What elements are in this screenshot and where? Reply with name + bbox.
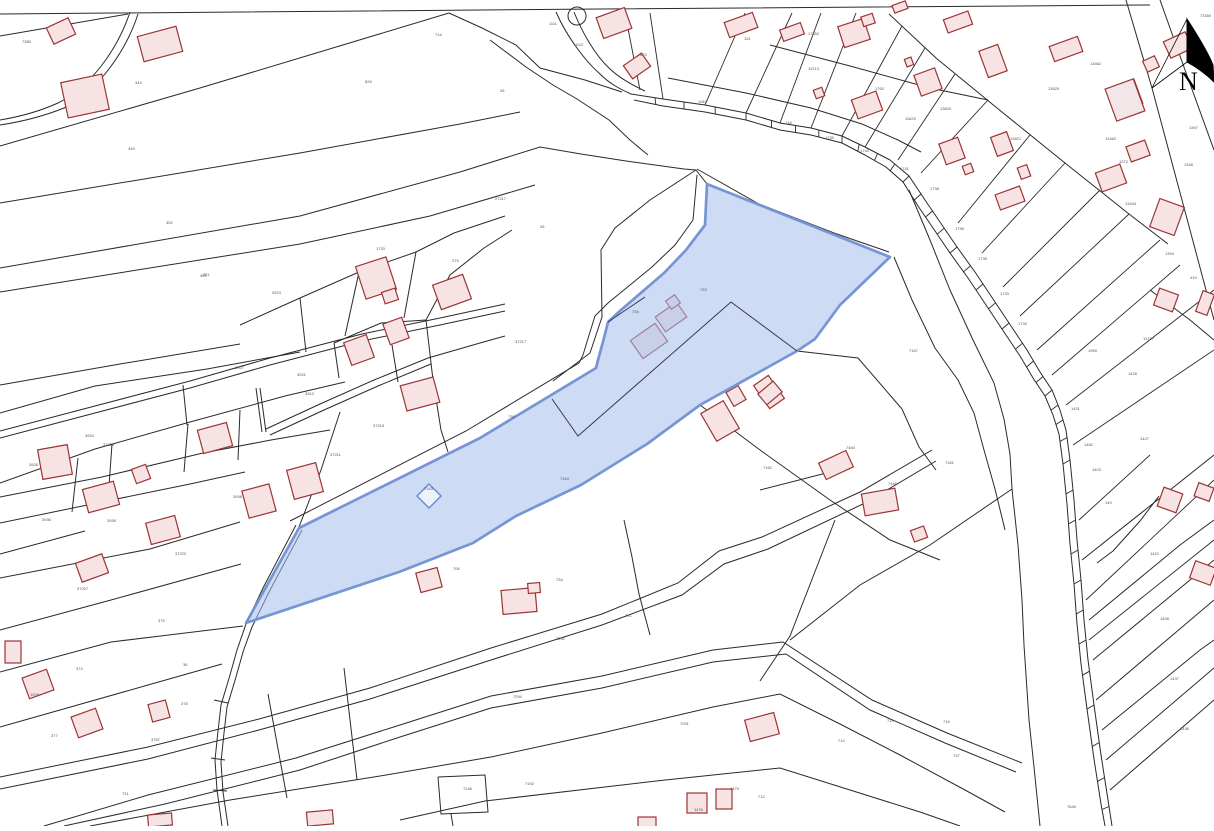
svg-text:1740: 1740 — [860, 148, 870, 153]
svg-text:731: 731 — [122, 791, 129, 796]
svg-text:1348: 1348 — [1184, 162, 1194, 167]
svg-text:1403: 1403 — [1092, 467, 1102, 472]
svg-text:7446: 7446 — [888, 481, 898, 486]
svg-text:1733: 1733 — [1000, 291, 1010, 296]
svg-text:1372: 1372 — [1119, 159, 1129, 164]
svg-text:7161: 7161 — [945, 460, 955, 465]
svg-text:13621: 13621 — [1010, 136, 1022, 141]
svg-text:1739: 1739 — [825, 135, 835, 140]
svg-text:7380: 7380 — [22, 39, 32, 44]
svg-text:1182: 1182 — [698, 99, 707, 104]
svg-text:738: 738 — [508, 414, 515, 419]
svg-text:1397: 1397 — [1189, 125, 1199, 130]
svg-text:1479: 1479 — [730, 786, 740, 791]
svg-text:7163: 7163 — [424, 486, 434, 491]
svg-text:149: 149 — [1105, 500, 1112, 505]
svg-text:1436: 1436 — [1180, 726, 1190, 731]
svg-text:1112: 1112 — [575, 42, 584, 47]
svg-text:7192: 7192 — [525, 781, 535, 786]
svg-text:1078: 1078 — [30, 692, 40, 697]
svg-text:361: 361 — [203, 272, 210, 277]
svg-text:1394: 1394 — [1165, 251, 1175, 256]
svg-text:3923: 3923 — [272, 290, 282, 295]
svg-text:1422: 1422 — [1150, 551, 1160, 556]
svg-text:13462: 13462 — [1090, 61, 1102, 66]
svg-text:114: 114 — [744, 36, 751, 41]
svg-text:1741: 1741 — [900, 166, 910, 171]
svg-text:374: 374 — [76, 666, 83, 671]
svg-text:7292: 7292 — [556, 636, 566, 641]
svg-text:3913: 3913 — [305, 391, 315, 396]
svg-text:344: 344 — [135, 80, 142, 85]
svg-text:1733: 1733 — [376, 246, 386, 251]
svg-text:826: 826 — [365, 79, 372, 84]
svg-text:37220: 37220 — [175, 551, 187, 556]
svg-text:1734: 1734 — [1018, 321, 1028, 326]
svg-text:419: 419 — [1190, 275, 1197, 280]
svg-text:134: 134 — [785, 120, 792, 125]
svg-text:26: 26 — [540, 224, 545, 229]
svg-text:3939: 3939 — [107, 518, 117, 523]
svg-text:721: 721 — [625, 613, 632, 618]
svg-text:1462: 1462 — [1084, 442, 1094, 447]
svg-text:1437: 1437 — [1170, 676, 1180, 681]
svg-text:13797: 13797 — [1143, 336, 1155, 341]
svg-text:7146: 7146 — [463, 786, 473, 791]
svg-text:716: 716 — [943, 719, 950, 724]
svg-text:349: 349 — [128, 146, 135, 151]
svg-text:1431: 1431 — [1071, 406, 1081, 411]
svg-text:1763: 1763 — [875, 86, 885, 91]
svg-text:73450: 73450 — [1200, 13, 1212, 18]
svg-text:36: 36 — [183, 662, 188, 667]
svg-text:13625: 13625 — [1048, 86, 1060, 91]
svg-text:1427: 1427 — [1140, 436, 1150, 441]
svg-text:17452: 17452 — [808, 31, 820, 36]
svg-text:13444: 13444 — [1125, 201, 1137, 206]
svg-text:7460: 7460 — [846, 445, 856, 450]
svg-text:706: 706 — [453, 566, 460, 571]
svg-text:1736: 1736 — [955, 226, 965, 231]
svg-text:3938: 3938 — [233, 494, 243, 499]
svg-text:3936: 3936 — [42, 517, 52, 522]
svg-text:7162: 7162 — [763, 465, 773, 470]
svg-text:1735: 1735 — [978, 256, 988, 261]
svg-text:7164: 7164 — [560, 476, 570, 481]
svg-text:1738: 1738 — [930, 186, 940, 191]
svg-text:377: 377 — [51, 733, 58, 738]
svg-text:375: 375 — [158, 618, 165, 623]
svg-text:3924: 3924 — [85, 433, 95, 438]
svg-text:37211: 37211 — [330, 452, 342, 457]
svg-text:3921: 3921 — [297, 372, 307, 377]
svg-text:719: 719 — [887, 718, 894, 723]
svg-text:N: N — [1179, 67, 1198, 96]
svg-text:26: 26 — [500, 88, 505, 93]
svg-text:37207: 37207 — [77, 586, 89, 591]
svg-text:712: 712 — [758, 794, 765, 799]
svg-text:352: 352 — [166, 220, 173, 225]
svg-text:7294: 7294 — [513, 694, 523, 699]
svg-text:37215: 37215 — [373, 423, 385, 428]
svg-text:1428: 1428 — [1128, 371, 1138, 376]
svg-text:3927: 3927 — [235, 365, 245, 370]
svg-text:714: 714 — [435, 32, 442, 37]
svg-text:13620: 13620 — [940, 106, 952, 111]
svg-text:714: 714 — [838, 738, 845, 743]
svg-text:13462: 13462 — [1105, 136, 1117, 141]
svg-text:1408: 1408 — [1160, 616, 1170, 621]
svg-text:37218: 37218 — [103, 442, 115, 447]
svg-text:27217: 27217 — [495, 196, 507, 201]
svg-text:11625: 11625 — [905, 116, 917, 121]
svg-text:623: 623 — [640, 52, 647, 57]
svg-text:1476: 1476 — [694, 807, 704, 812]
svg-text:378: 378 — [181, 701, 188, 706]
svg-text:7167: 7167 — [909, 348, 919, 353]
svg-text:1111: 1111 — [549, 21, 558, 26]
svg-text:1959: 1959 — [1088, 348, 1098, 353]
svg-text:37217: 37217 — [515, 339, 527, 344]
svg-text:737: 737 — [953, 753, 960, 758]
svg-text:734: 734 — [556, 577, 563, 582]
svg-text:7091: 7091 — [680, 721, 690, 726]
svg-text:3787: 3787 — [151, 737, 161, 742]
svg-text:3928: 3928 — [29, 462, 39, 467]
svg-text:275: 275 — [452, 258, 459, 263]
svg-text:734: 734 — [632, 309, 639, 314]
svg-text:11313: 11313 — [808, 66, 820, 71]
svg-text:7646: 7646 — [1067, 804, 1077, 809]
svg-text:733: 733 — [700, 287, 707, 292]
